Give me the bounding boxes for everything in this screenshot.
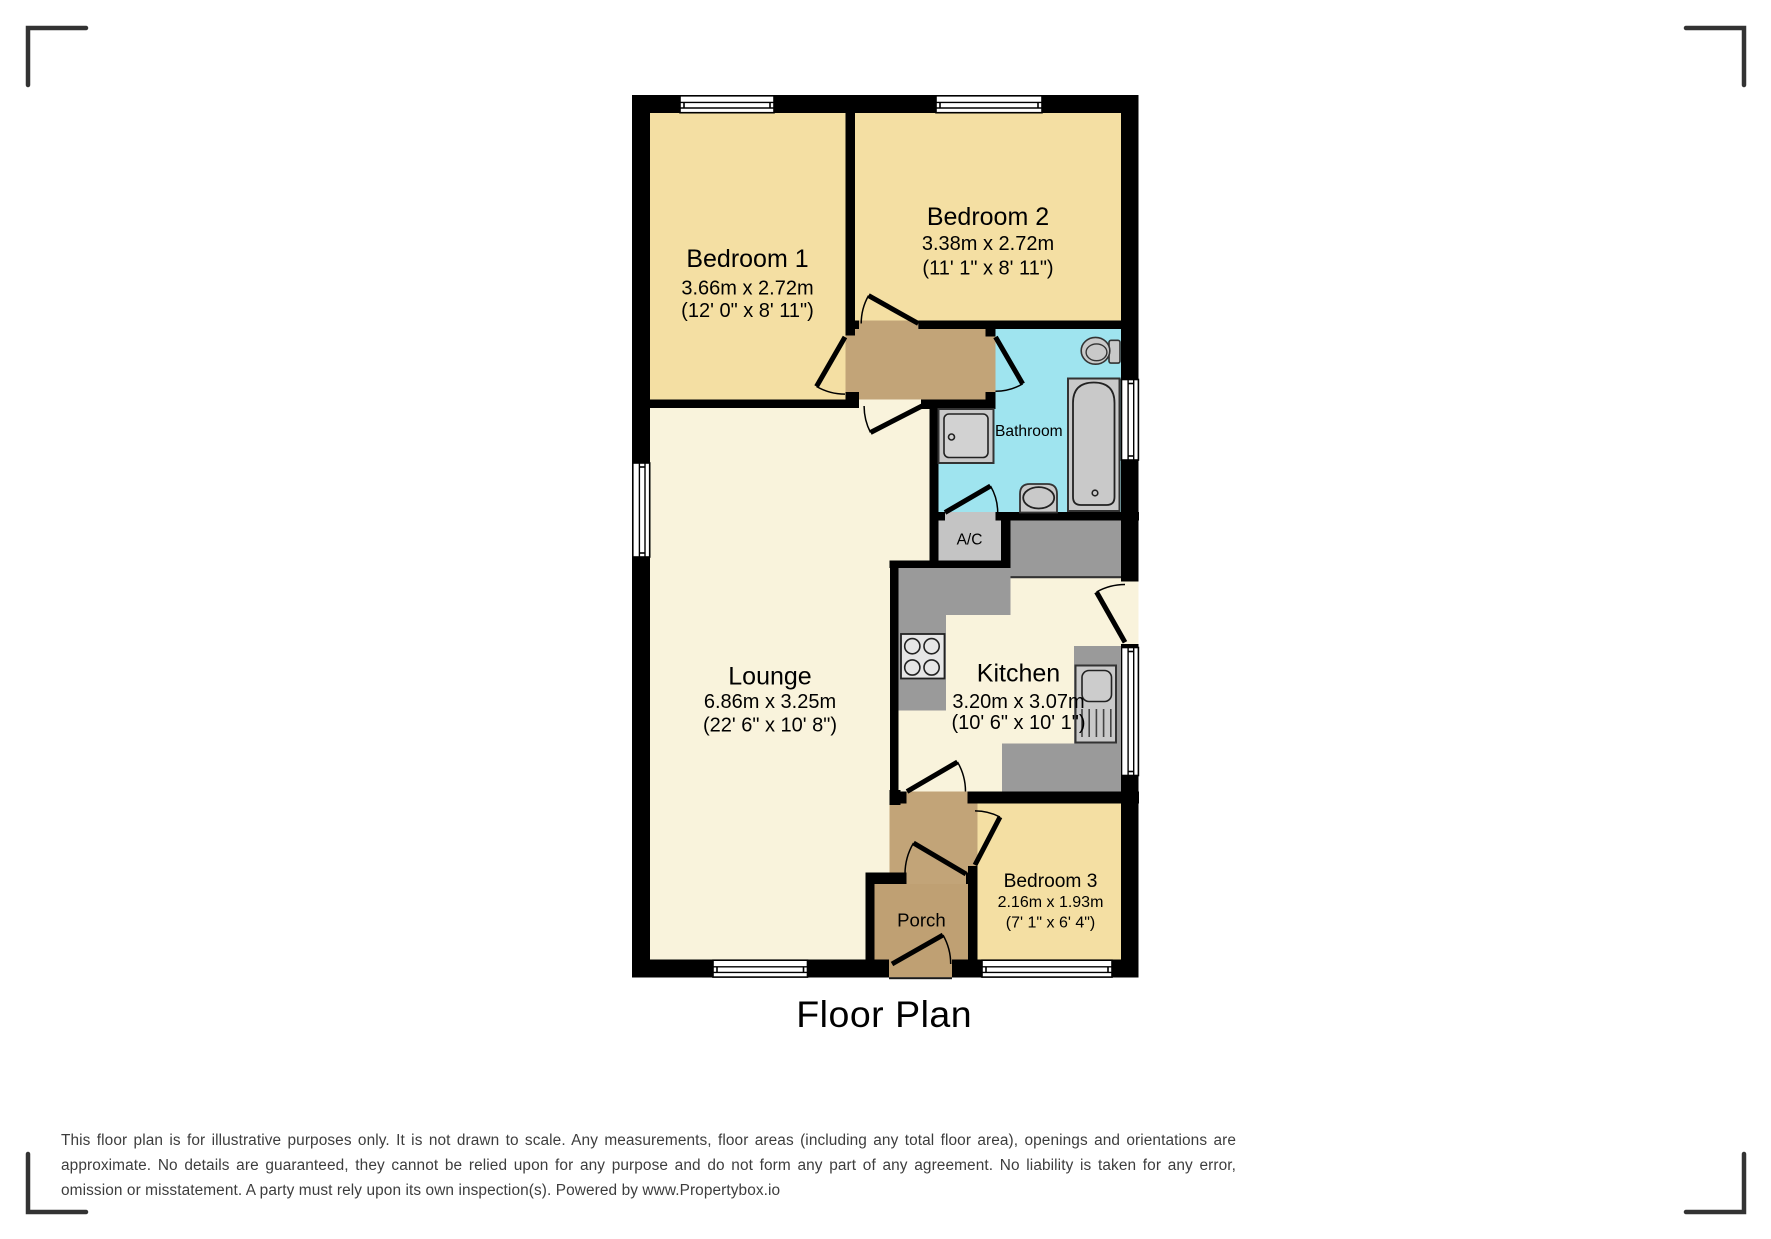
svg-text:3.20m x 3.07m: 3.20m x 3.07m xyxy=(952,691,1084,713)
svg-text:3.38m x 2.72m: 3.38m x 2.72m xyxy=(922,233,1054,255)
svg-text:Bedroom 3: Bedroom 3 xyxy=(1004,871,1098,892)
svg-text:(12' 0" x 8' 11"): (12' 0" x 8' 11") xyxy=(681,300,814,322)
svg-text:Kitchen: Kitchen xyxy=(977,660,1060,688)
svg-text:Lounge: Lounge xyxy=(728,663,811,691)
svg-text:(7' 1" x 6' 4"): (7' 1" x 6' 4") xyxy=(1006,915,1096,932)
svg-text:Porch: Porch xyxy=(897,910,946,931)
svg-text:3.66m x 2.72m: 3.66m x 2.72m xyxy=(681,278,813,300)
svg-text:2.16m x 1.93m: 2.16m x 1.93m xyxy=(998,894,1104,911)
svg-text:Bathroom: Bathroom xyxy=(995,423,1063,440)
svg-text:Bedroom 2: Bedroom 2 xyxy=(927,203,1049,231)
svg-text:Floor Plan: Floor Plan xyxy=(796,993,972,1035)
svg-text:(22' 6" x 10' 8"): (22' 6" x 10' 8") xyxy=(703,715,837,737)
svg-text:Bedroom 1: Bedroom 1 xyxy=(686,245,808,273)
svg-text:(11' 1" x 8' 11"): (11' 1" x 8' 11") xyxy=(922,258,1053,280)
svg-text:(10' 6" x 10' 1"): (10' 6" x 10' 1") xyxy=(951,712,1085,734)
svg-text:A/C: A/C xyxy=(957,532,983,549)
svg-text:6.86m x 3.25m: 6.86m x 3.25m xyxy=(704,691,836,713)
